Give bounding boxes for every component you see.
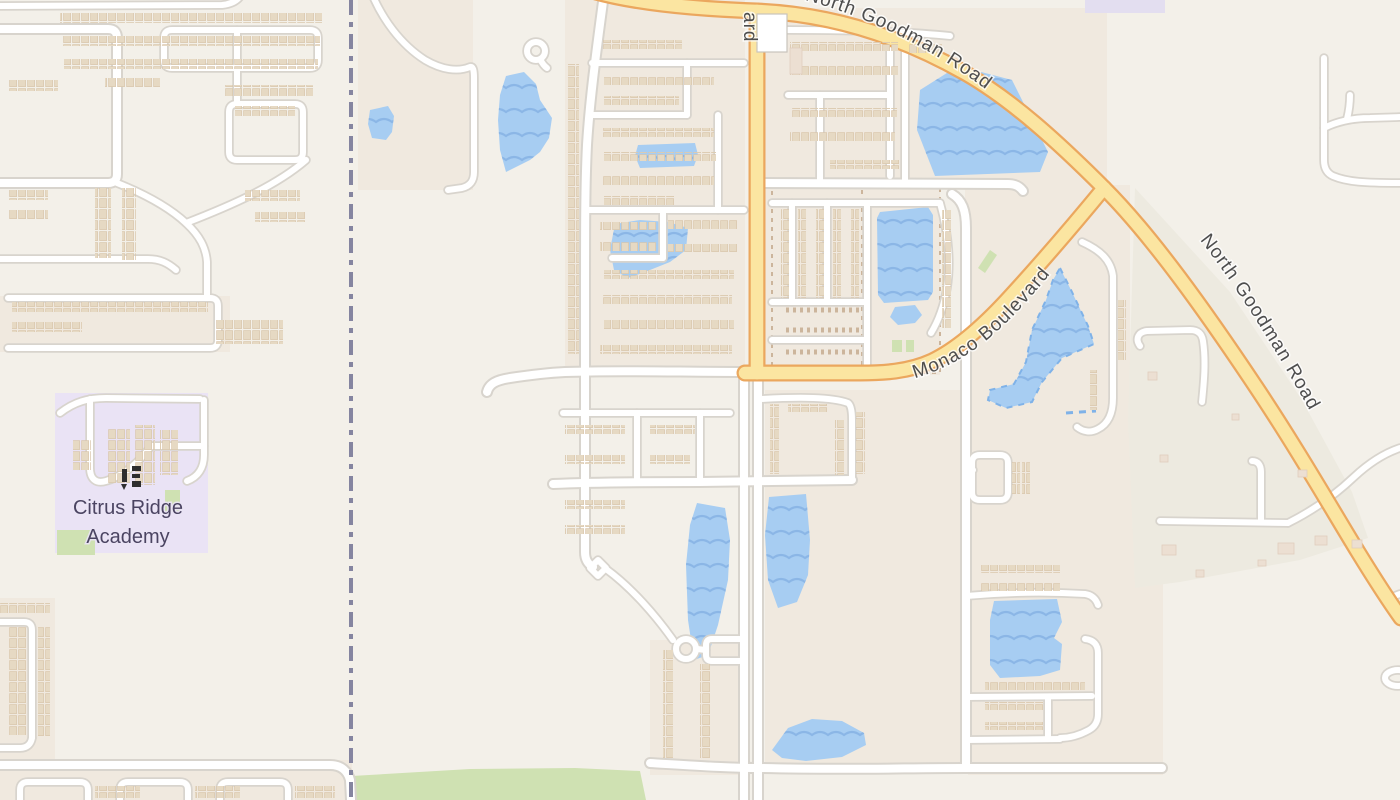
building-strip bbox=[122, 188, 136, 260]
building-strip bbox=[568, 64, 579, 354]
building bbox=[1160, 455, 1168, 462]
building bbox=[1196, 570, 1204, 577]
street bbox=[966, 696, 1092, 697]
building-strip bbox=[790, 66, 898, 75]
building-strip bbox=[38, 627, 50, 737]
building-strip bbox=[792, 108, 897, 117]
building-strip bbox=[1012, 462, 1020, 494]
building-strip bbox=[942, 210, 951, 328]
building-strip bbox=[602, 128, 714, 137]
building-strip bbox=[668, 244, 738, 253]
building-strip bbox=[600, 242, 656, 251]
building-strip bbox=[1022, 462, 1030, 494]
building-strip bbox=[105, 78, 160, 88]
building-strip bbox=[788, 404, 828, 412]
building-strip bbox=[980, 583, 1060, 591]
building bbox=[1232, 414, 1239, 420]
building-strip bbox=[8, 190, 48, 200]
building-strip bbox=[8, 627, 26, 735]
building bbox=[1298, 470, 1307, 477]
building-strip bbox=[781, 208, 789, 298]
building-strip bbox=[985, 702, 1043, 710]
building-strip bbox=[95, 786, 140, 798]
building-strip bbox=[160, 430, 178, 475]
school-label-line1: Citrus Ridge bbox=[73, 497, 183, 519]
building bbox=[1352, 540, 1362, 548]
building bbox=[1148, 372, 1157, 380]
building-strip bbox=[602, 40, 682, 49]
building-strip bbox=[600, 222, 656, 231]
building-strip bbox=[12, 302, 208, 312]
building bbox=[1315, 536, 1327, 545]
building-strip bbox=[816, 208, 824, 298]
building-strip bbox=[790, 42, 898, 51]
building-strip bbox=[604, 196, 674, 205]
building-strip bbox=[602, 295, 732, 304]
building-strip bbox=[650, 455, 690, 464]
building-strip bbox=[604, 270, 734, 279]
building-strip bbox=[0, 603, 50, 613]
building-strip bbox=[565, 425, 625, 434]
building-strip bbox=[565, 525, 625, 534]
building-strip bbox=[1118, 300, 1126, 360]
building-strip bbox=[980, 565, 1060, 573]
building-strip bbox=[835, 420, 844, 475]
building-strip bbox=[650, 425, 695, 434]
building-strip bbox=[62, 36, 320, 46]
building-strip bbox=[565, 455, 625, 464]
building-strip bbox=[770, 404, 779, 474]
building bbox=[1278, 543, 1294, 554]
road-label-boulevard-partial: ard bbox=[739, 12, 760, 42]
building-strip bbox=[12, 322, 82, 332]
building-strip bbox=[790, 132, 895, 141]
building-strip bbox=[602, 176, 714, 185]
map-viewport[interactable]: North Goodman RoadNorth Goodman RoadMona… bbox=[0, 0, 1400, 800]
building-strip bbox=[798, 208, 806, 298]
building-strip bbox=[195, 786, 240, 798]
building bbox=[790, 48, 802, 74]
building-strip bbox=[604, 152, 716, 161]
building-strip bbox=[985, 682, 1085, 690]
building-strip bbox=[1090, 370, 1098, 410]
building-strip bbox=[8, 80, 58, 91]
building bbox=[1258, 560, 1266, 566]
map-canvas[interactable]: North Goodman RoadNorth Goodman RoadMona… bbox=[0, 0, 1400, 800]
building-strip bbox=[700, 664, 710, 759]
residential-area bbox=[358, 0, 473, 190]
building-strip bbox=[245, 190, 300, 201]
lavender-area bbox=[1085, 0, 1165, 13]
building-strip bbox=[985, 722, 1043, 730]
building-strip bbox=[235, 106, 295, 116]
building-strip bbox=[8, 210, 48, 220]
building-strip bbox=[95, 188, 111, 258]
building-strip bbox=[830, 160, 900, 169]
building-strip bbox=[604, 320, 734, 329]
building-strip bbox=[604, 96, 679, 105]
school-label-line2: Academy bbox=[86, 526, 169, 548]
building-strip bbox=[604, 76, 714, 85]
street bbox=[1160, 521, 1288, 523]
building bbox=[1162, 545, 1176, 555]
building-strip bbox=[565, 500, 625, 509]
building-strip bbox=[856, 412, 865, 474]
green-area bbox=[906, 340, 914, 352]
building-strip bbox=[851, 208, 859, 298]
building-strip bbox=[663, 650, 673, 758]
building-strip bbox=[833, 208, 841, 298]
building-strip bbox=[600, 345, 732, 354]
building-strip bbox=[64, 59, 318, 69]
street bbox=[1347, 95, 1350, 119]
building-strip bbox=[295, 786, 335, 798]
green-area bbox=[892, 340, 902, 352]
road bbox=[553, 480, 852, 484]
building-strip bbox=[668, 220, 738, 229]
building-strip bbox=[60, 13, 322, 23]
building-strip bbox=[225, 85, 313, 96]
building-strip bbox=[255, 212, 305, 222]
large-building bbox=[757, 14, 787, 52]
building-strip bbox=[215, 320, 283, 344]
building-strip bbox=[73, 440, 91, 470]
